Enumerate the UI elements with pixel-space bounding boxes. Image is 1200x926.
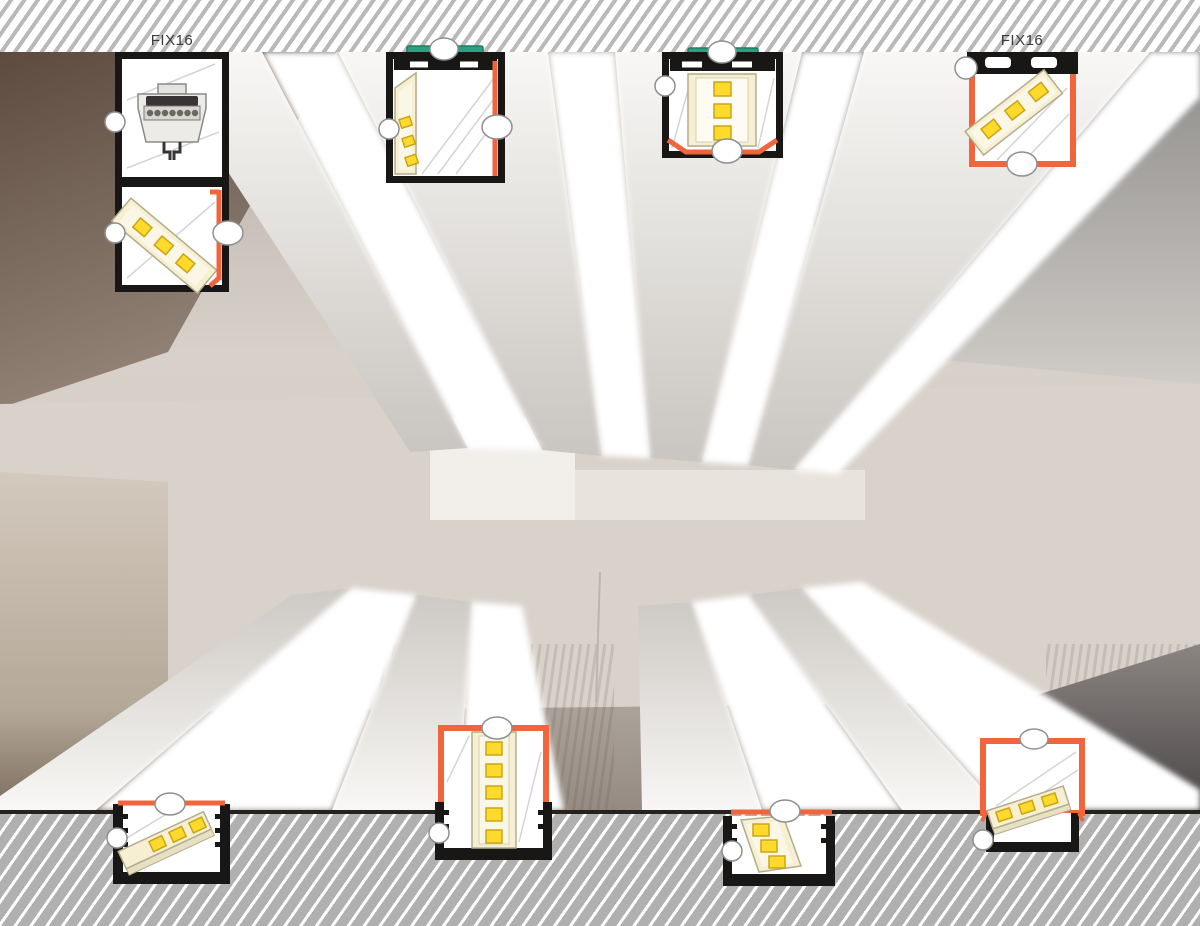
callout-marker <box>712 139 742 163</box>
callout-marker <box>482 115 512 139</box>
callout-marker <box>379 119 399 139</box>
profile-diagram-recessed-1 <box>113 800 230 888</box>
callout-marker <box>973 830 993 850</box>
profile-diagram-orange-channel <box>980 738 1085 857</box>
callout-marker <box>1007 152 1037 176</box>
led-strip <box>395 73 418 174</box>
led-strip <box>472 732 516 848</box>
callout-marker <box>770 800 800 822</box>
callout-marker <box>955 57 977 79</box>
callout-marker <box>105 112 125 132</box>
led-strip <box>688 74 756 146</box>
fix16-label-right: FIX16 <box>962 31 1082 51</box>
callout-marker <box>155 793 185 815</box>
profile-diagram-recessed-deep <box>435 722 552 860</box>
callout-marker <box>1020 729 1048 749</box>
callout-marker <box>655 76 675 96</box>
callout-marker <box>107 828 127 848</box>
profile-diagram-fix16 <box>967 52 1078 172</box>
callout-marker <box>213 221 243 245</box>
callout-marker <box>105 223 125 243</box>
profile-diagram-connector <box>115 52 229 292</box>
profile-diagram-front-led <box>662 48 783 162</box>
callout-marker <box>722 841 742 861</box>
callout-marker <box>482 717 512 739</box>
profile-diagram-recessed-2 <box>723 808 835 890</box>
callout-marker <box>430 38 458 60</box>
profile-diagram-side-led <box>386 46 505 187</box>
callout-marker <box>708 41 736 63</box>
fix16-label-left: FIX16 <box>112 31 232 51</box>
illustration-canvas: FIX16 FIX16 <box>0 0 1200 926</box>
callout-marker <box>429 823 449 843</box>
